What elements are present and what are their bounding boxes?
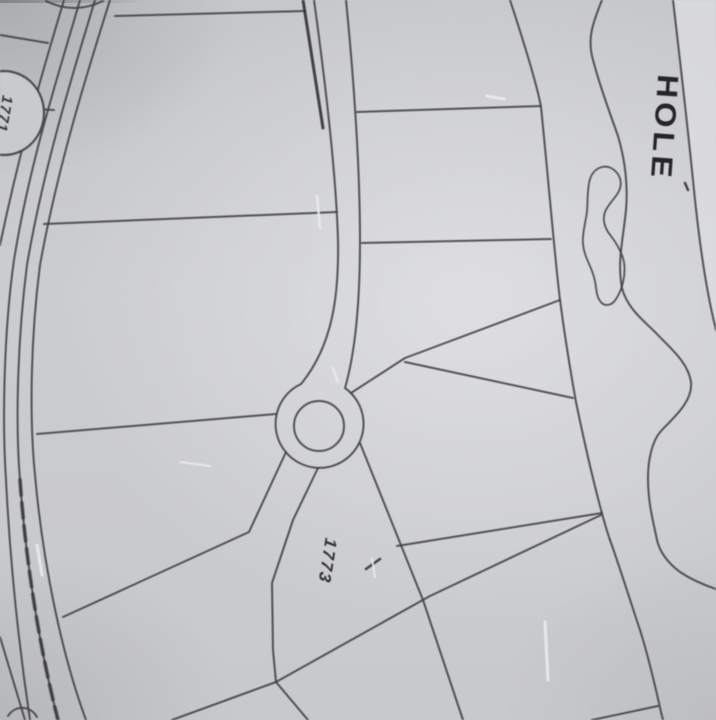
lot-line-south-from-bulb bbox=[272, 468, 318, 720]
lot-line-br-steep bbox=[610, 540, 663, 720]
lot-line-ne-from-bulb bbox=[351, 300, 560, 393]
center-road-and-culdesac bbox=[276, 0, 364, 468]
lot-line-f1 bbox=[357, 106, 541, 112]
plat-artwork: HOLE 1773 1771 bbox=[0, 0, 716, 720]
lot-line-top bbox=[115, 11, 305, 16]
lot-line-br-bottom bbox=[592, 706, 658, 720]
bunker-outline bbox=[583, 167, 625, 305]
plat-linework bbox=[0, 0, 716, 720]
lot-line-west-upper bbox=[0, 35, 48, 43]
lot-line-sw-from-bulb bbox=[63, 452, 286, 617]
lot-line-f2 bbox=[362, 239, 551, 243]
lot-line-long-vertical bbox=[510, 0, 610, 540]
center-road-flank-line bbox=[303, 0, 323, 128]
lot-line-se-from-bulb bbox=[360, 443, 463, 720]
lot-line-east-2 bbox=[37, 414, 276, 434]
lot-line-diag-long bbox=[172, 515, 601, 720]
lot-line-horiz-mid bbox=[405, 362, 573, 398]
lot-line-east-1 bbox=[44, 212, 337, 224]
plat-map-photo: HOLE 1773 1771 bbox=[0, 0, 716, 720]
mark-top-right bbox=[685, 183, 688, 190]
culdesac-island bbox=[294, 401, 344, 451]
